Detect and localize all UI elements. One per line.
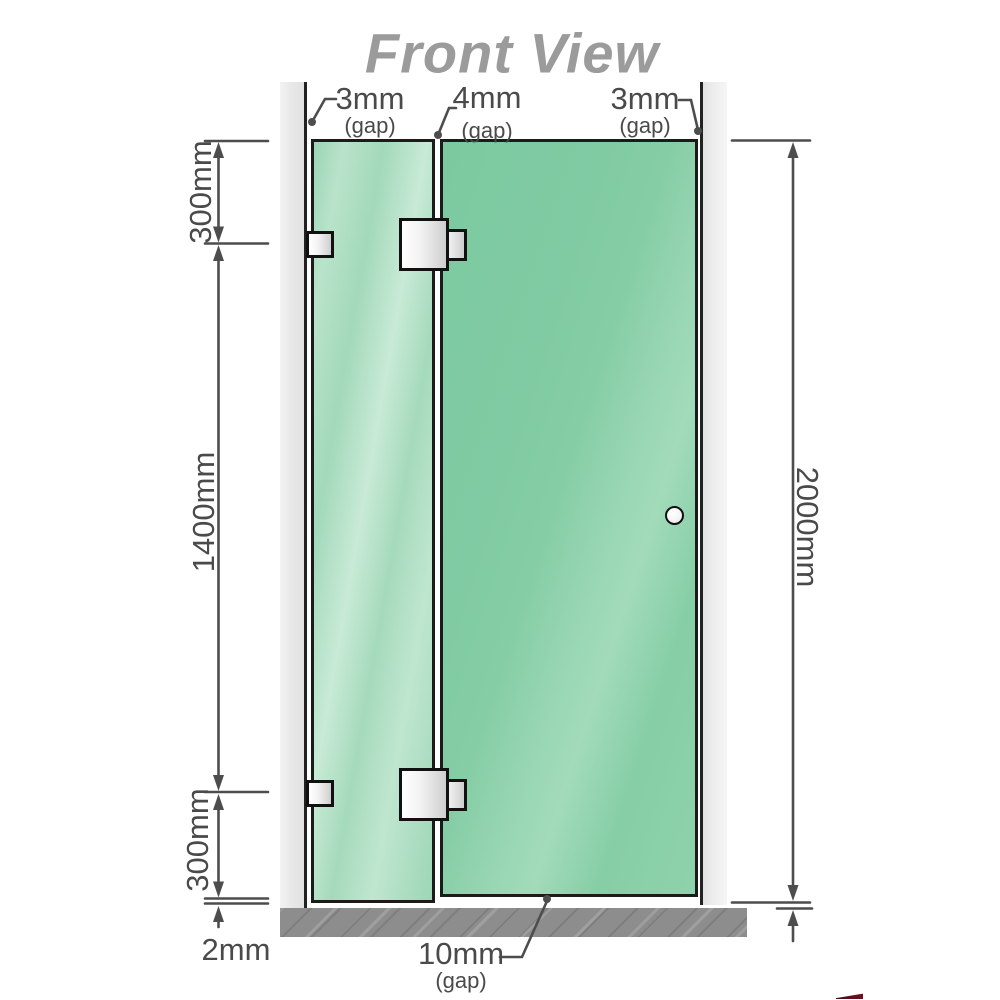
left-wall-channel — [280, 82, 307, 908]
gap-qualifier: (gap) — [330, 115, 410, 137]
gap-qualifier: (gap) — [418, 970, 504, 992]
gap-value: 3mm — [330, 83, 410, 115]
door-knob-icon — [665, 506, 684, 525]
gap-value: 4mm — [448, 82, 526, 114]
wall-bracket-top-icon — [306, 231, 334, 258]
door-glass-panel — [440, 139, 698, 897]
red-corner-logo-sliver — [836, 993, 863, 999]
gap-label-top-middle: 4mm (gap) — [448, 82, 526, 142]
glass-hinge-bottom-icon — [399, 768, 449, 821]
gap-label-bottom: 10mm (gap) — [418, 938, 504, 992]
dimension-label-bottom-left-300mm: 300mm — [180, 788, 216, 891]
gap-label-top-right: 3mm (gap) — [606, 83, 684, 137]
gap-value: 10mm — [418, 938, 504, 970]
gap-qualifier: (gap) — [606, 115, 684, 137]
page-title: Front View — [365, 21, 659, 86]
right-wall-channel — [700, 82, 727, 905]
dimension-label-right-2000mm: 2000mm — [789, 467, 825, 588]
dimension-label-top-left-300mm: 300mm — [183, 140, 219, 243]
gap-value: 3mm — [606, 83, 684, 115]
gap-qualifier: (gap) — [448, 120, 526, 142]
glass-hinge-top-icon — [399, 218, 449, 271]
gap-label-top-left: 3mm (gap) — [330, 83, 410, 137]
dimension-label-middle-left-1400mm: 1400mm — [186, 452, 222, 573]
dimension-label-floor-gap-2mm: 2mm — [202, 932, 271, 968]
wall-bracket-bottom-icon — [306, 780, 334, 807]
front-view-diagram: Front View 3mm (gap) 4mm (gap) 3mm (gap)… — [0, 0, 1000, 1000]
floor-sill — [280, 908, 747, 937]
